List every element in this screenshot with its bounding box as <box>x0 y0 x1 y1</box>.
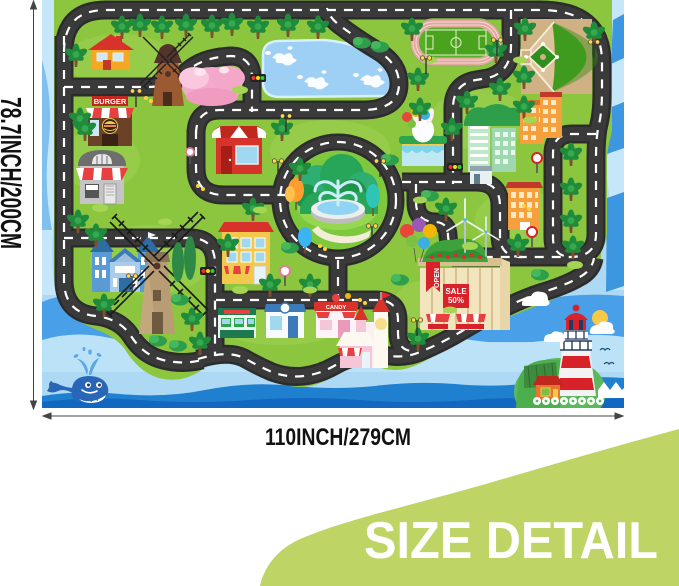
svg-text:CANDY: CANDY <box>326 305 347 311</box>
svg-text:SALE: SALE <box>445 287 467 296</box>
svg-text:50%: 50% <box>448 296 464 305</box>
svg-text:SIZE DETAIL: SIZE DETAIL <box>364 512 658 570</box>
svg-text:OPEN: OPEN <box>434 268 441 288</box>
svg-text:110INCH/279CM: 110INCH/279CM <box>265 424 411 451</box>
svg-text:BURGER: BURGER <box>94 97 127 106</box>
svg-text:78.7INCH/200CM: 78.7INCH/200CM <box>0 97 26 249</box>
